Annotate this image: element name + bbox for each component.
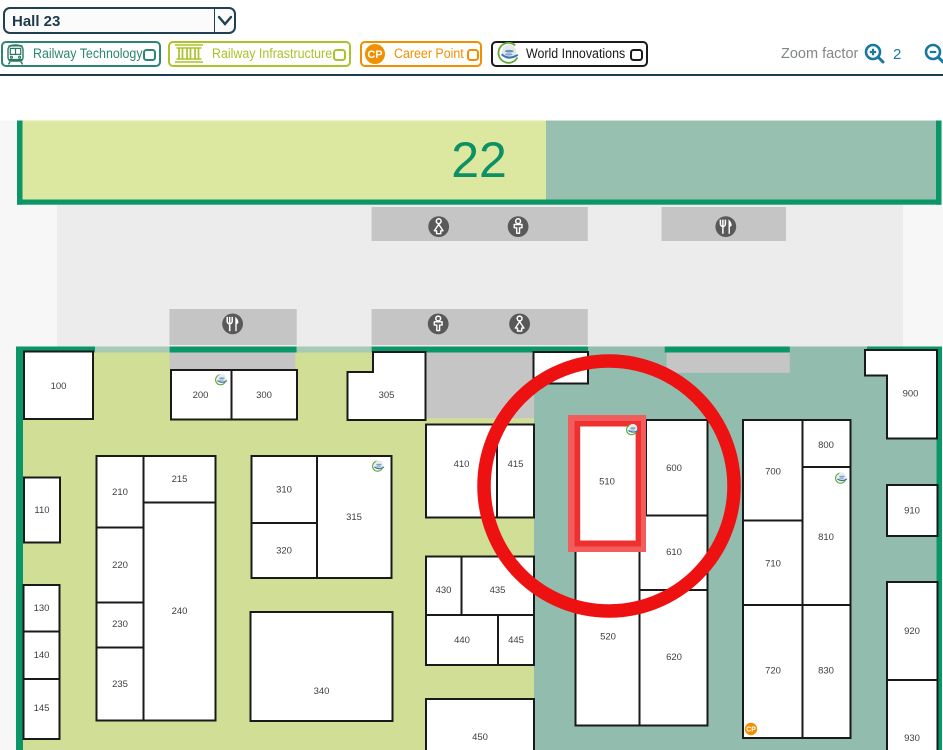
svg-text:310: 310: [276, 485, 292, 496]
svg-text:240: 240: [172, 606, 188, 617]
svg-text:450: 450: [472, 732, 488, 743]
svg-text:140: 140: [34, 650, 50, 661]
svg-text:130: 130: [34, 603, 50, 614]
svg-text:610: 610: [666, 547, 682, 558]
svg-text:320: 320: [276, 546, 292, 557]
svg-text:600: 600: [666, 463, 682, 474]
svg-text:110: 110: [34, 505, 49, 516]
svg-text:22: 22: [451, 132, 507, 188]
svg-text:200: 200: [193, 390, 209, 401]
svg-text:430: 430: [436, 585, 452, 596]
svg-text:710: 710: [765, 559, 781, 570]
svg-text:220: 220: [112, 560, 128, 571]
svg-text:435: 435: [490, 585, 506, 596]
svg-text:830: 830: [818, 666, 834, 677]
svg-text:315: 315: [346, 512, 362, 523]
svg-text:305: 305: [379, 390, 395, 401]
svg-text:100: 100: [51, 381, 67, 392]
svg-text:235: 235: [112, 679, 128, 690]
svg-text:700: 700: [765, 467, 781, 478]
svg-text:920: 920: [904, 626, 920, 637]
svg-text:810: 810: [818, 532, 834, 543]
svg-text:230: 230: [112, 619, 128, 630]
svg-text:440: 440: [454, 635, 470, 646]
svg-text:415: 415: [508, 459, 524, 470]
svg-text:CP: CP: [367, 49, 382, 61]
svg-text:210: 210: [112, 487, 128, 498]
svg-text:930: 930: [904, 733, 920, 744]
svg-text:340: 340: [314, 686, 330, 697]
svg-text:900: 900: [903, 389, 919, 400]
svg-text:445: 445: [508, 635, 524, 646]
svg-text:CP: CP: [746, 727, 756, 734]
svg-text:215: 215: [172, 474, 188, 485]
svg-text:720: 720: [765, 666, 781, 677]
svg-text:145: 145: [34, 703, 50, 714]
svg-text:510: 510: [599, 477, 615, 488]
svg-text:800: 800: [818, 440, 834, 451]
svg-text:910: 910: [904, 506, 920, 517]
svg-text:300: 300: [256, 390, 272, 401]
svg-text:520: 520: [600, 632, 616, 643]
svg-text:620: 620: [666, 652, 682, 663]
svg-text:410: 410: [454, 459, 470, 470]
